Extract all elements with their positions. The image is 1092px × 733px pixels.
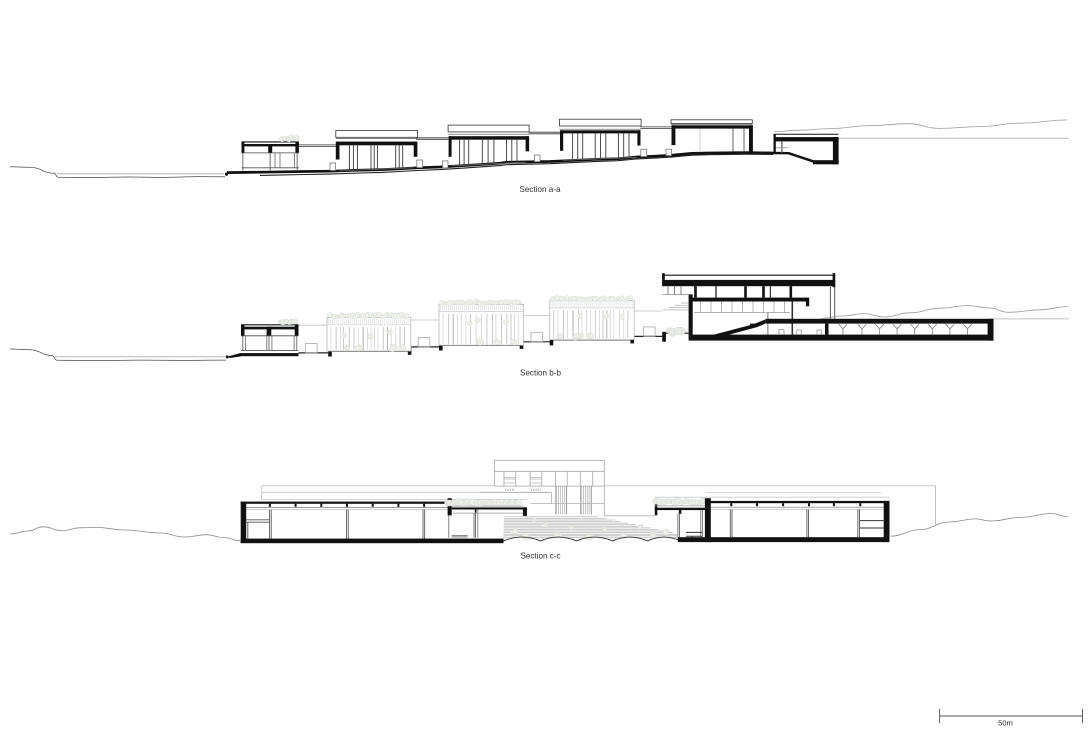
svg-text:Section a-a: Section a-a xyxy=(520,185,561,194)
svg-text:Section b-b: Section b-b xyxy=(520,368,561,377)
svg-text:Section c-c: Section c-c xyxy=(520,551,560,560)
svg-text:50m: 50m xyxy=(998,719,1013,728)
